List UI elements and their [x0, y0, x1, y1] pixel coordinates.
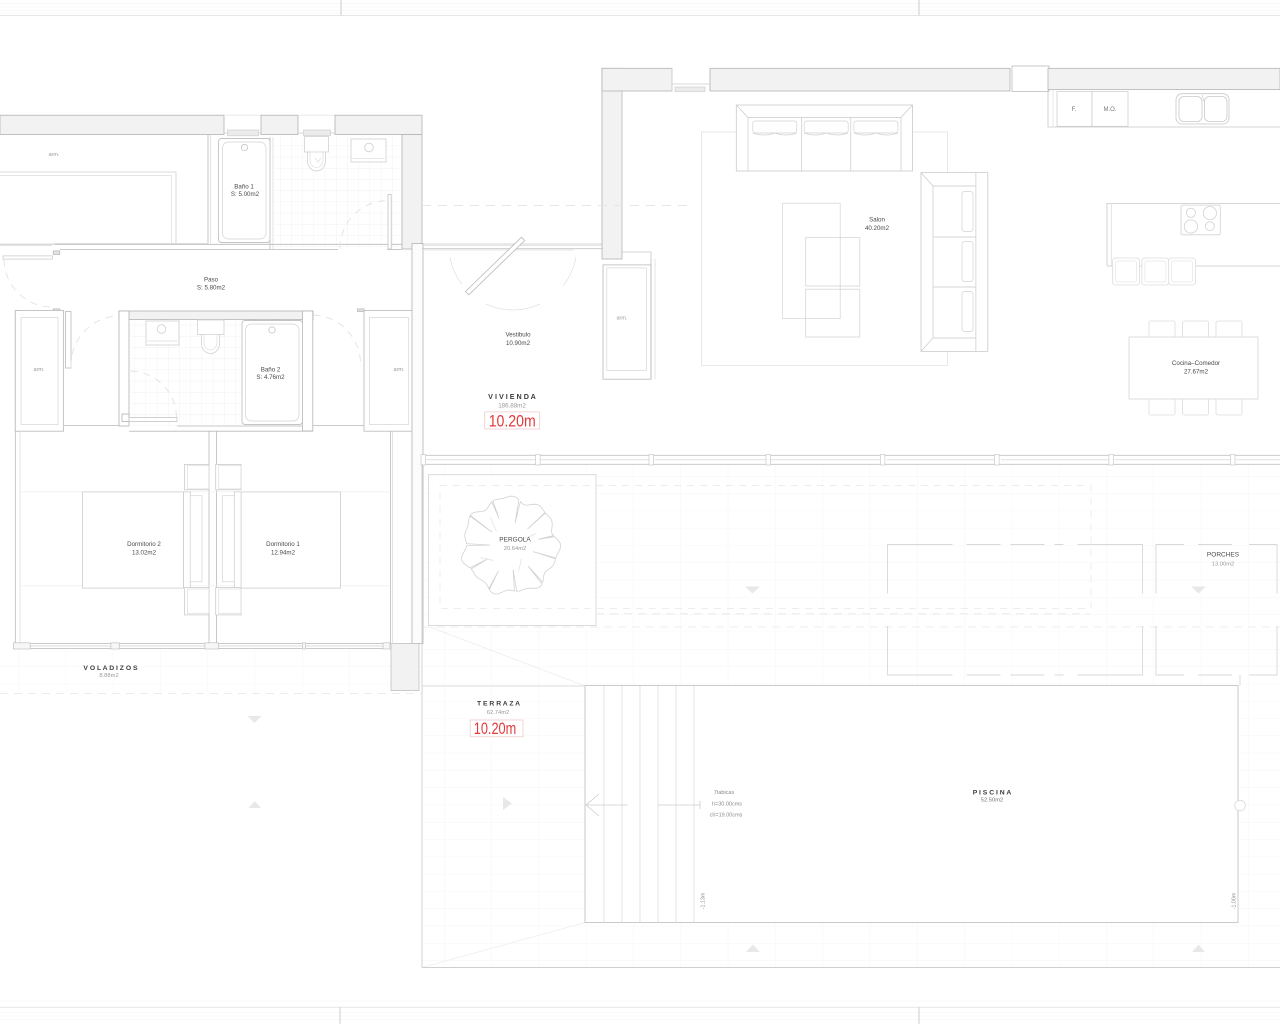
svg-text:7tabicas: 7tabicas — [714, 790, 735, 796]
svg-text:Baño 1: Baño 1 — [234, 184, 254, 191]
svg-text:arm.: arm. — [617, 316, 628, 322]
svg-text:12.94m2: 12.94m2 — [271, 550, 296, 557]
svg-text:10.20m: 10.20m — [474, 720, 517, 738]
svg-text:S: 5.80m2: S: 5.80m2 — [197, 285, 226, 292]
svg-text:S: 5.00m2: S: 5.00m2 — [231, 191, 260, 198]
svg-text:V I V I E N D A: V I V I E N D A — [488, 392, 536, 401]
svg-text:Vestibulo: Vestibulo — [505, 332, 531, 339]
svg-text:27.67m2: 27.67m2 — [1184, 368, 1209, 375]
svg-text:40.20m2: 40.20m2 — [865, 225, 890, 232]
svg-text:P I S C I N A: P I S C I N A — [973, 790, 1012, 797]
svg-text:ch=19.00cms: ch=19.00cms — [710, 813, 743, 819]
svg-text:Dormitorio 1: Dormitorio 1 — [266, 541, 300, 548]
svg-text:52.50m2: 52.50m2 — [981, 798, 1004, 804]
svg-text:Baño 2: Baño 2 — [261, 367, 281, 374]
svg-text:arm.: arm. — [49, 152, 60, 158]
svg-text:F.: F. — [1072, 107, 1077, 113]
svg-text:h=30.00cms: h=30.00cms — [712, 802, 742, 808]
svg-text:arm.: arm. — [394, 367, 405, 373]
svg-text:Paso: Paso — [204, 277, 219, 284]
svg-text:-1.00m: -1.00m — [1232, 892, 1238, 909]
svg-text:13.02m2: 13.02m2 — [132, 550, 157, 557]
svg-text:10.20m: 10.20m — [489, 413, 536, 431]
svg-text:V O L A D I Z O S: V O L A D I Z O S — [83, 665, 138, 672]
svg-text:arm.: arm. — [34, 367, 45, 373]
svg-text:S: 4.76m2: S: 4.76m2 — [256, 374, 285, 381]
svg-text:-1.13m: -1.13m — [701, 892, 707, 909]
svg-text:62.74m2: 62.74m2 — [487, 710, 510, 716]
svg-text:8.88m2: 8.88m2 — [99, 673, 118, 679]
svg-text:PERGOLA: PERGOLA — [499, 537, 531, 544]
svg-text:20.64m2: 20.64m2 — [504, 546, 527, 552]
svg-text:13.00m2: 13.00m2 — [1212, 562, 1235, 568]
svg-text:186.88m2: 186.88m2 — [498, 403, 526, 410]
svg-text:10.90m2: 10.90m2 — [506, 340, 531, 347]
svg-text:M.O.: M.O. — [1104, 107, 1117, 113]
svg-text:PORCHES: PORCHES — [1207, 552, 1240, 559]
svg-text:T E R R A Z A: T E R R A Z A — [477, 701, 520, 708]
svg-text:Dormitorio 2: Dormitorio 2 — [127, 541, 161, 548]
svg-text:Salon: Salon — [869, 217, 885, 224]
svg-text:Cocina–Comedor: Cocina–Comedor — [1172, 360, 1220, 367]
